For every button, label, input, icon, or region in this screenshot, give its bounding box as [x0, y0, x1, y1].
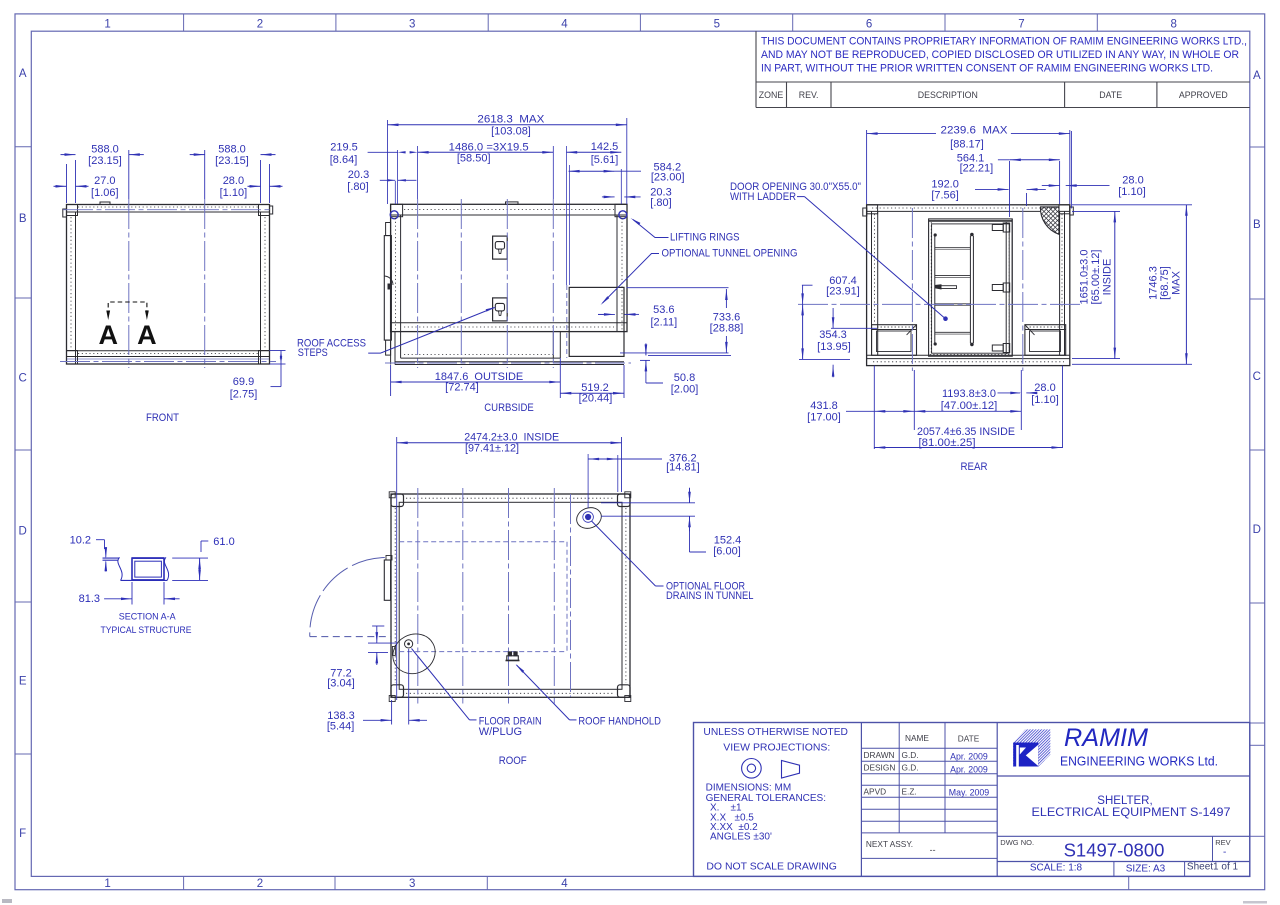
svg-text:[2.75]: [2.75] — [230, 388, 258, 400]
svg-text:LIFTING RINGS: LIFTING RINGS — [670, 231, 740, 243]
svg-text:VIEW PROJECTIONS:: VIEW PROJECTIONS: — [723, 743, 830, 754]
svg-text:APPROVED: APPROVED — [1179, 90, 1228, 100]
svg-text:[17.00]: [17.00] — [807, 412, 841, 424]
svg-text:ROOF HANDHOLD: ROOF HANDHOLD — [578, 716, 661, 728]
svg-text:[.80]: [.80] — [347, 181, 368, 193]
svg-text:2: 2 — [257, 19, 263, 31]
svg-text:[5.61]: [5.61] — [591, 154, 619, 166]
svg-text:[2.11]: [2.11] — [650, 316, 677, 328]
svg-text:DATE: DATE — [1099, 90, 1122, 100]
svg-text:[22.21]: [22.21] — [960, 162, 994, 174]
svg-text:Apr. 2009: Apr. 2009 — [950, 765, 988, 775]
svg-text:CURBSIDE: CURBSIDE — [484, 402, 534, 414]
svg-text:3: 3 — [409, 878, 415, 890]
svg-text:219.5: 219.5 — [330, 142, 358, 154]
svg-text:UNLESS OTHERWISE NOTED: UNLESS OTHERWISE NOTED — [703, 727, 848, 738]
svg-text:[88.17]: [88.17] — [950, 138, 984, 150]
svg-text:[68.75]: [68.75] — [1159, 266, 1171, 300]
svg-text:SECTION A-A: SECTION A-A — [119, 612, 177, 623]
svg-text:4: 4 — [561, 19, 568, 31]
svg-text:E.Z.: E.Z. — [902, 786, 917, 796]
svg-text:[20.44]: [20.44] — [579, 392, 613, 404]
svg-text:1746.3: 1746.3 — [1148, 266, 1160, 300]
svg-text:INSIDE: INSIDE — [1102, 259, 1114, 296]
svg-text:1: 1 — [104, 878, 110, 890]
svg-text:C: C — [1253, 371, 1261, 383]
svg-text:D: D — [1253, 524, 1261, 536]
svg-text:2: 2 — [257, 878, 263, 890]
svg-text:3: 3 — [409, 19, 415, 31]
svg-text:50.8: 50.8 — [674, 372, 695, 384]
svg-text:DESIGN: DESIGN — [864, 763, 896, 773]
svg-text:TYPICAL STRUCTURE: TYPICAL STRUCTURE — [101, 625, 192, 636]
svg-text:MAX: MAX — [1171, 270, 1183, 295]
svg-text:5: 5 — [714, 19, 720, 31]
svg-text:[5.44]: [5.44] — [327, 720, 355, 732]
svg-text:ELECTRICAL EQUIPMENT S-1497: ELECTRICAL EQUIPMENT S-1497 — [1032, 807, 1231, 819]
svg-text:[3.04]: [3.04] — [327, 677, 355, 689]
svg-text:[65.00±.12]: [65.00±.12] — [1090, 250, 1102, 305]
svg-text:ENGINEERING WORKS Ltd.: ENGINEERING WORKS Ltd. — [1060, 754, 1218, 769]
svg-text:[47.00±.12]: [47.00±.12] — [941, 400, 998, 412]
svg-text:-: - — [1223, 847, 1226, 858]
svg-text:53.6: 53.6 — [653, 304, 674, 316]
svg-text:[6.00]: [6.00] — [713, 546, 741, 558]
svg-text:733.6: 733.6 — [713, 311, 741, 323]
svg-text:2239.6 MAX: 2239.6 MAX — [941, 124, 1009, 136]
svg-text:--: -- — [930, 845, 936, 855]
svg-text:APVD: APVD — [864, 786, 887, 796]
svg-text:588.0: 588.0 — [91, 143, 119, 155]
svg-text:[1.10]: [1.10] — [1118, 186, 1146, 198]
svg-text:81.3: 81.3 — [79, 593, 100, 605]
svg-text:NAME: NAME — [905, 733, 929, 743]
svg-text:[1.10]: [1.10] — [1031, 394, 1059, 406]
svg-text:[72.74]: [72.74] — [445, 382, 479, 394]
svg-text:E: E — [19, 676, 27, 688]
svg-text:A: A — [1253, 70, 1261, 82]
svg-text:May. 2009: May. 2009 — [949, 787, 990, 797]
svg-text:6: 6 — [866, 19, 872, 31]
svg-text:IN PART, WITHOUT THE PRIOR WRI: IN PART, WITHOUT THE PRIOR WRITTEN CONSE… — [761, 62, 1213, 74]
svg-text:DATE: DATE — [958, 734, 980, 744]
svg-text:[97.41±.12]: [97.41±.12] — [465, 443, 519, 455]
svg-text:G.D.: G.D. — [902, 750, 919, 760]
svg-text:142.5: 142.5 — [591, 141, 619, 153]
svg-text:F: F — [19, 828, 26, 840]
svg-text:4: 4 — [561, 878, 568, 890]
svg-text:[23.91]: [23.91] — [826, 285, 860, 297]
svg-text:SIZE: A3: SIZE: A3 — [1126, 864, 1166, 875]
svg-text:SHELTER,: SHELTER, — [1097, 795, 1152, 807]
svg-text:[.80]: [.80] — [650, 197, 671, 209]
svg-text:[23.15]: [23.15] — [215, 155, 249, 167]
svg-text:Apr. 2009: Apr. 2009 — [950, 752, 988, 762]
svg-text:C: C — [19, 373, 27, 385]
svg-text:[8.64]: [8.64] — [330, 154, 358, 166]
svg-text:S1497-0800: S1497-0800 — [1064, 840, 1165, 861]
svg-text:DIMENSIONS: MM: DIMENSIONS: MM — [706, 782, 792, 793]
svg-text:28.0: 28.0 — [223, 175, 244, 187]
svg-text:8: 8 — [1170, 19, 1176, 31]
svg-text:1651.0±3.0: 1651.0±3.0 — [1079, 250, 1091, 305]
svg-text:69.9: 69.9 — [233, 376, 254, 388]
svg-text:A: A — [137, 320, 157, 350]
svg-text:THIS DOCUMENT CONTAINS PROPRIE: THIS DOCUMENT CONTAINS PROPRIETARY INFOR… — [761, 36, 1247, 48]
svg-text:DESCRIPTION: DESCRIPTION — [918, 90, 978, 100]
svg-text:1193.8±3.0: 1193.8±3.0 — [942, 388, 996, 400]
svg-text:61.0: 61.0 — [213, 536, 234, 548]
svg-text:28.0: 28.0 — [1122, 174, 1143, 186]
svg-text:DWG NO.: DWG NO. — [1000, 838, 1034, 847]
svg-text:1: 1 — [104, 19, 110, 31]
svg-text:WITH LADDER: WITH LADDER — [730, 191, 796, 203]
svg-text:DO NOT SCALE DRAWING: DO NOT SCALE DRAWING — [706, 861, 837, 872]
svg-text:A: A — [98, 320, 118, 350]
svg-text:[1.06]: [1.06] — [91, 187, 119, 199]
svg-text:AND MAY NOT BE REPRODUCED, COP: AND MAY NOT BE REPRODUCED, COPIED DISCLO… — [761, 49, 1239, 61]
svg-text:REAR: REAR — [961, 461, 988, 473]
svg-text:ANGLES ±30': ANGLES ±30' — [710, 832, 772, 843]
svg-text:STEPS: STEPS — [298, 347, 328, 359]
svg-text:[1.10]: [1.10] — [220, 187, 248, 199]
svg-text:Sheet1 of 1: Sheet1 of 1 — [1187, 862, 1239, 873]
svg-text:B: B — [1253, 219, 1261, 231]
svg-text:354.3: 354.3 — [819, 329, 847, 341]
svg-text:27.0: 27.0 — [94, 175, 115, 187]
svg-text:[103.08]: [103.08] — [491, 125, 531, 137]
svg-text:[13.95]: [13.95] — [817, 341, 851, 353]
svg-text:[14.81]: [14.81] — [666, 461, 700, 473]
svg-text:[7.56]: [7.56] — [931, 189, 959, 201]
svg-text:D: D — [19, 526, 27, 538]
svg-text:28.0: 28.0 — [1034, 382, 1055, 394]
svg-text:W/PLUG: W/PLUG — [479, 726, 522, 738]
svg-text:SCALE: 1:8: SCALE: 1:8 — [1030, 863, 1083, 874]
svg-text:REV: REV — [1215, 838, 1230, 847]
svg-text:RAMIM: RAMIM — [1064, 724, 1148, 752]
svg-text:2057.4±6.35 INSIDE: 2057.4±6.35 INSIDE — [917, 426, 1015, 438]
svg-text:ZONE: ZONE — [759, 90, 784, 100]
svg-text:DRAWN: DRAWN — [864, 750, 895, 760]
svg-text:REV.: REV. — [799, 90, 819, 100]
svg-text:2618.3 MAX: 2618.3 MAX — [477, 114, 545, 126]
svg-text:20.3: 20.3 — [348, 169, 369, 181]
svg-text:7: 7 — [1018, 19, 1024, 31]
svg-text:NEXT ASSY.: NEXT ASSY. — [866, 839, 913, 849]
svg-text:10.2: 10.2 — [70, 534, 91, 546]
svg-text:[23.15]: [23.15] — [88, 155, 122, 167]
svg-text:ROOF: ROOF — [499, 755, 527, 767]
svg-text:588.0: 588.0 — [218, 143, 246, 155]
svg-text:[23.00]: [23.00] — [651, 171, 685, 183]
svg-text:OPTIONAL TUNNEL OPENING: OPTIONAL TUNNEL OPENING — [662, 247, 798, 259]
svg-text:[28.88]: [28.88] — [710, 323, 744, 335]
svg-text:B: B — [19, 213, 27, 225]
svg-text:A: A — [19, 68, 27, 80]
svg-text:[58.50]: [58.50] — [457, 153, 491, 165]
svg-text:FRONT: FRONT — [146, 412, 179, 424]
svg-text:431.8: 431.8 — [810, 400, 838, 412]
svg-text:G.D.: G.D. — [902, 763, 919, 773]
svg-text:DRAINS IN TUNNEL: DRAINS IN TUNNEL — [666, 590, 754, 602]
svg-text:[2.00]: [2.00] — [671, 384, 699, 396]
